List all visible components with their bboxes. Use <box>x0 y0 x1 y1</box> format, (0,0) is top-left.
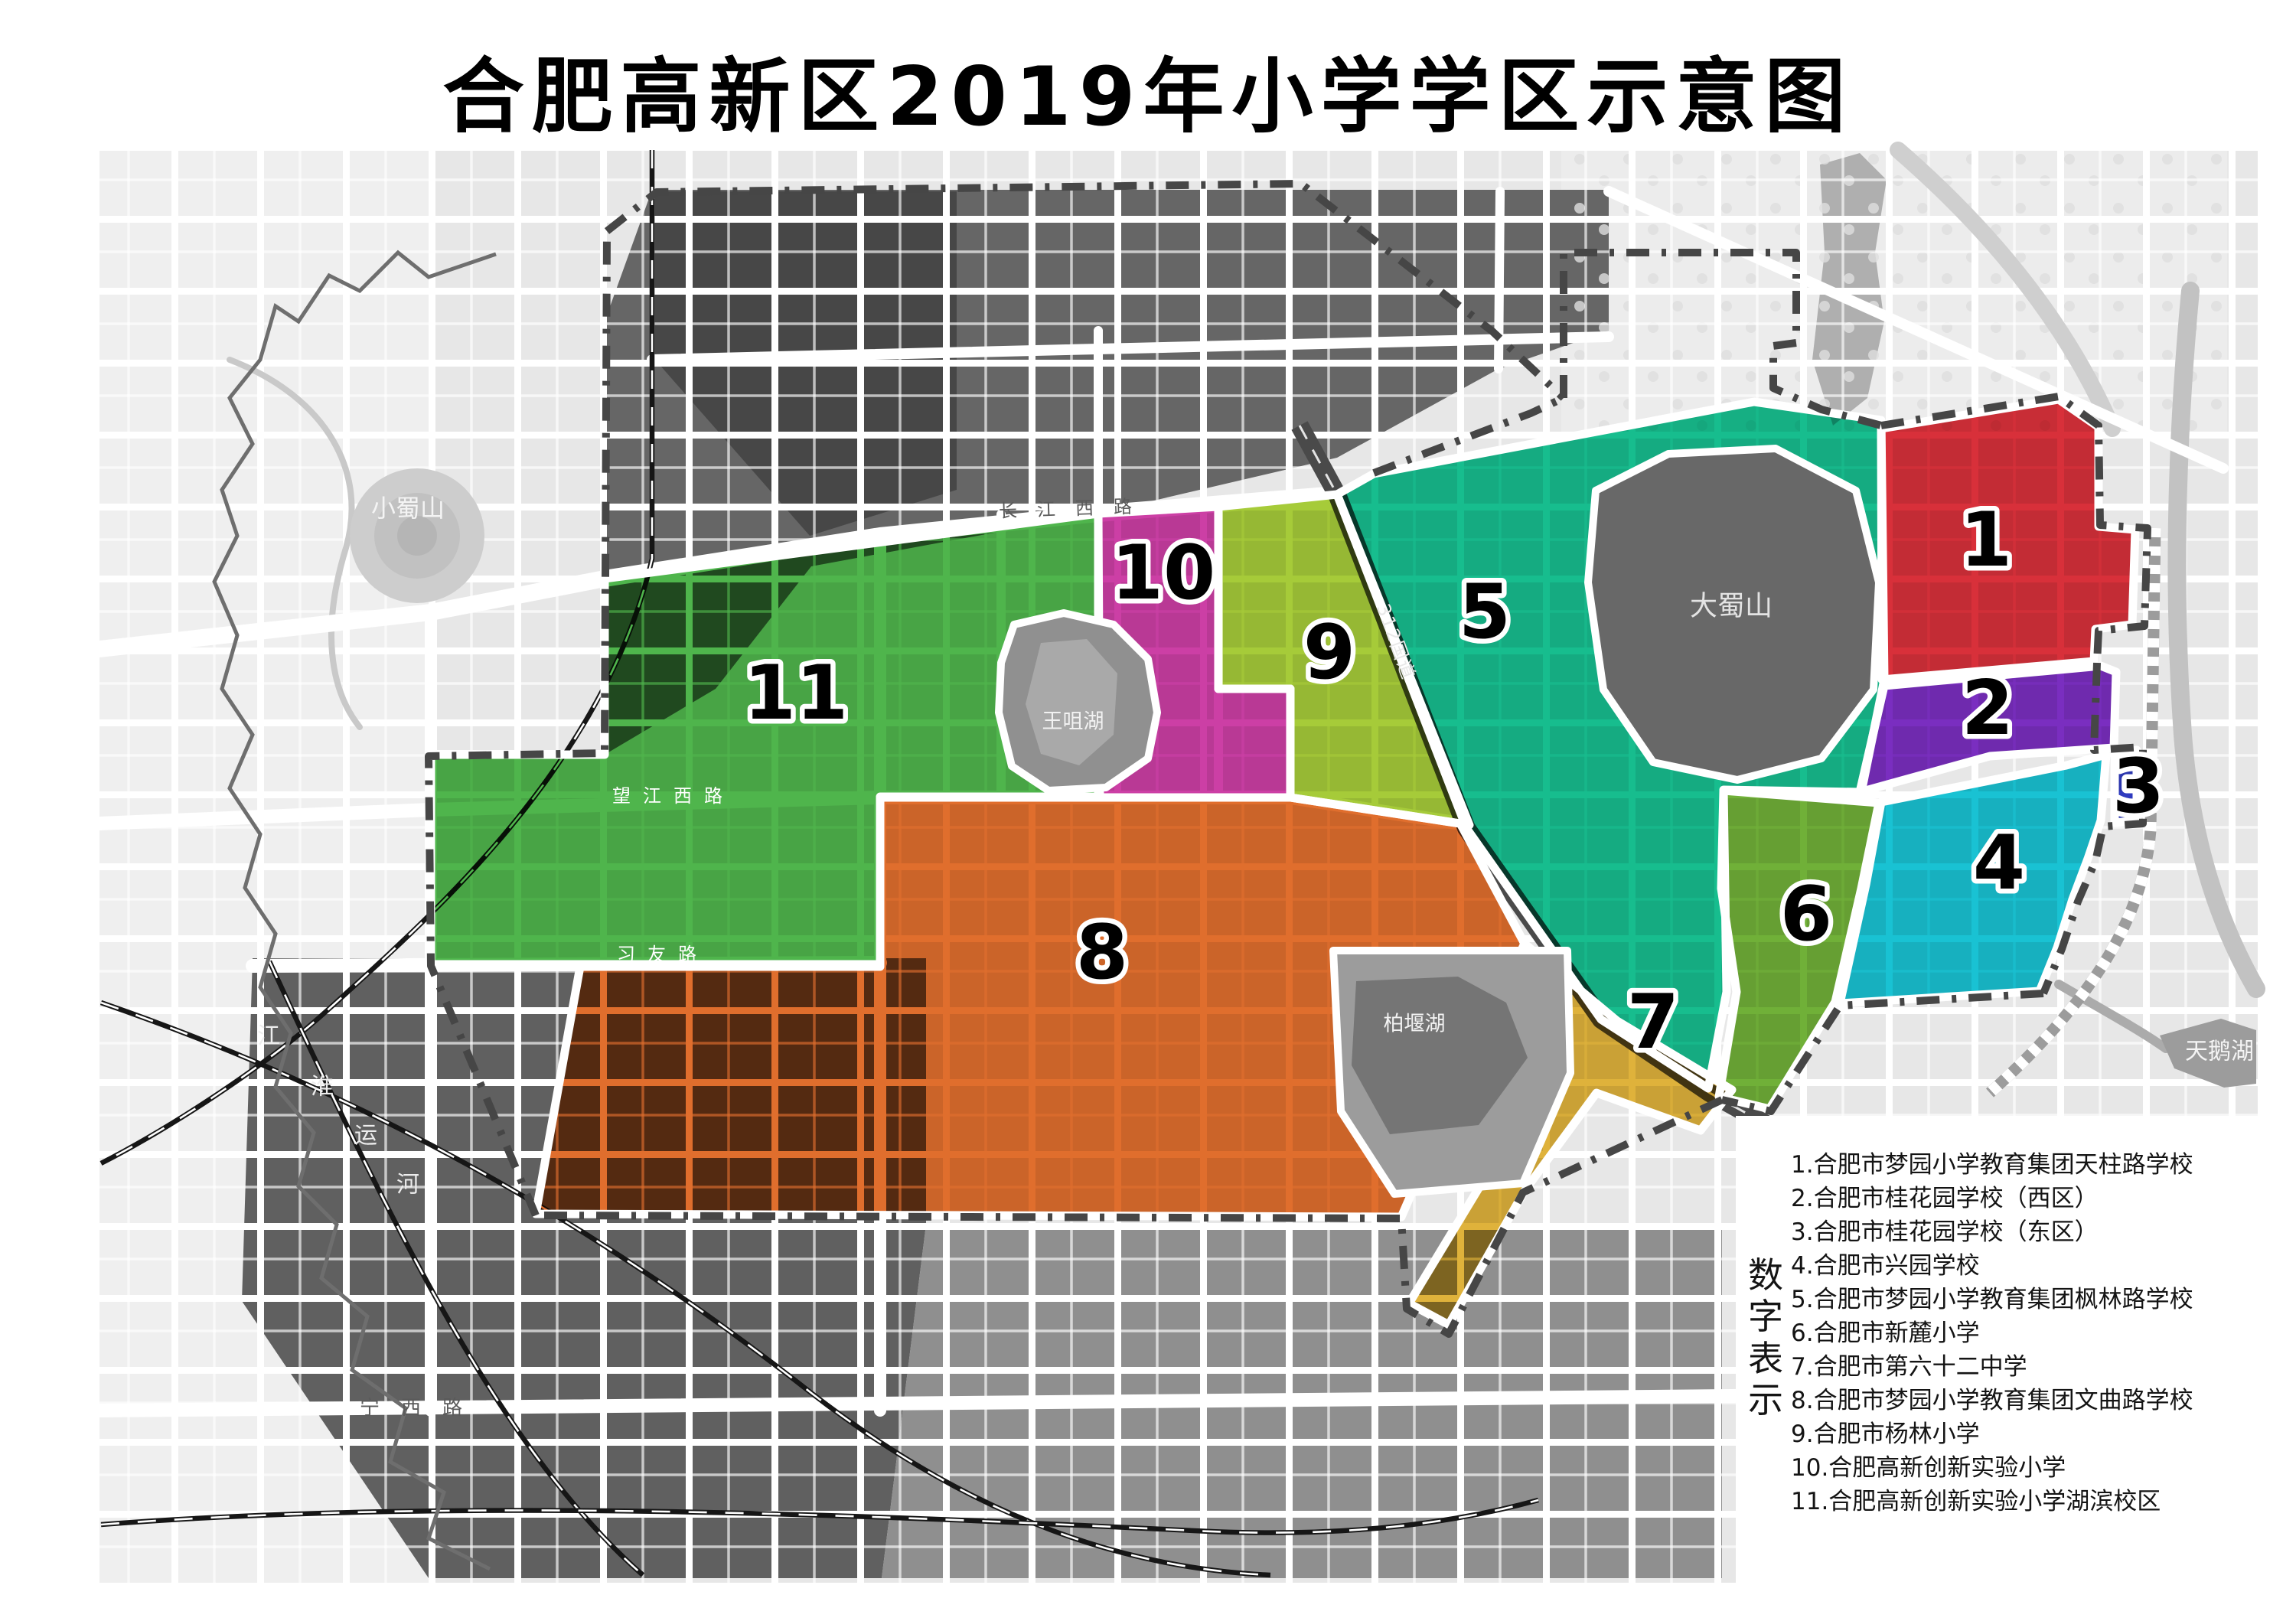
street-label: 习友路 <box>617 944 709 965</box>
legend-item-4: 4.合肥市兴园学校 <box>1791 1249 2193 1283</box>
district-10-number: 10 <box>1111 530 1215 617</box>
wangzuhu-lake-label: 王咀湖 <box>1042 710 1104 734</box>
legend-heading-char: 表 <box>1748 1340 1783 1377</box>
district-1-number: 1 <box>1960 497 2012 584</box>
legend-item-6: 6.合肥市新麓小学 <box>1791 1316 2193 1350</box>
legend-item-10: 10.合肥高新创新实验小学 <box>1791 1451 2193 1485</box>
district-4-number: 4 <box>1973 820 2025 907</box>
street-label: 宁西路 <box>360 1397 484 1420</box>
legend-item-5: 5.合肥市梦园小学教育集团枫林路学校 <box>1791 1283 2193 1316</box>
street-label: 淮 <box>311 1074 334 1101</box>
legend-item-2: 2.合肥市桂花园学校（西区） <box>1791 1182 2193 1215</box>
legend-item-7: 7.合肥市第六十二中学 <box>1791 1350 2193 1384</box>
legend-item-1: 1.合肥市梦园小学教育集团天柱路学校 <box>1791 1148 2193 1182</box>
district-8-number: 8 <box>1076 909 1128 996</box>
legend: 数字表示 1.合肥市梦园小学教育集团天柱路学校2.合肥市桂花园学校（西区）3.合… <box>1736 1116 2288 1584</box>
legend-heading-char: 字 <box>1748 1298 1783 1335</box>
street-label: 望江西路 <box>612 785 735 807</box>
dashushan-label: 大蜀山 <box>1690 591 1773 622</box>
tianehu-lake-label: 天鹅湖 <box>2185 1039 2254 1065</box>
district-3-number: 3 <box>2112 743 2164 830</box>
street-label: 运 <box>354 1123 377 1150</box>
district-7-number: 7 <box>1627 979 1679 1066</box>
district-9-number: 9 <box>1303 609 1355 696</box>
legend-item-8: 8.合肥市梦园小学教育集团文曲路学校 <box>1791 1384 2193 1417</box>
street-label: 河 <box>396 1172 419 1199</box>
district-2-number: 2 <box>1962 665 2014 752</box>
baiyanhu-lake-label: 柏堰湖 <box>1384 1013 1446 1036</box>
legend-item-3: 3.合肥市桂花园学校（东区） <box>1791 1215 2193 1249</box>
legend-item-list: 1.合肥市梦园小学教育集团天柱路学校2.合肥市桂花园学校（西区）3.合肥市桂花园… <box>1791 1148 2193 1518</box>
legend-heading-vertical: 数字表示 <box>1748 1257 1783 1418</box>
district-6-number: 6 <box>1780 871 1832 958</box>
legend-item-9: 9.合肥市杨林小学 <box>1791 1417 2193 1451</box>
district-5-number: 5 <box>1459 569 1511 656</box>
xiaoshushan-label: 小蜀山 <box>371 494 445 523</box>
district-11-number: 11 <box>744 650 848 737</box>
street-label: 江 <box>257 1023 280 1050</box>
legend-heading-char: 示 <box>1748 1381 1783 1418</box>
legend-heading-char: 数 <box>1748 1257 1783 1293</box>
legend-item-11: 11.合肥高新创新实验小学湖滨校区 <box>1791 1485 2193 1518</box>
